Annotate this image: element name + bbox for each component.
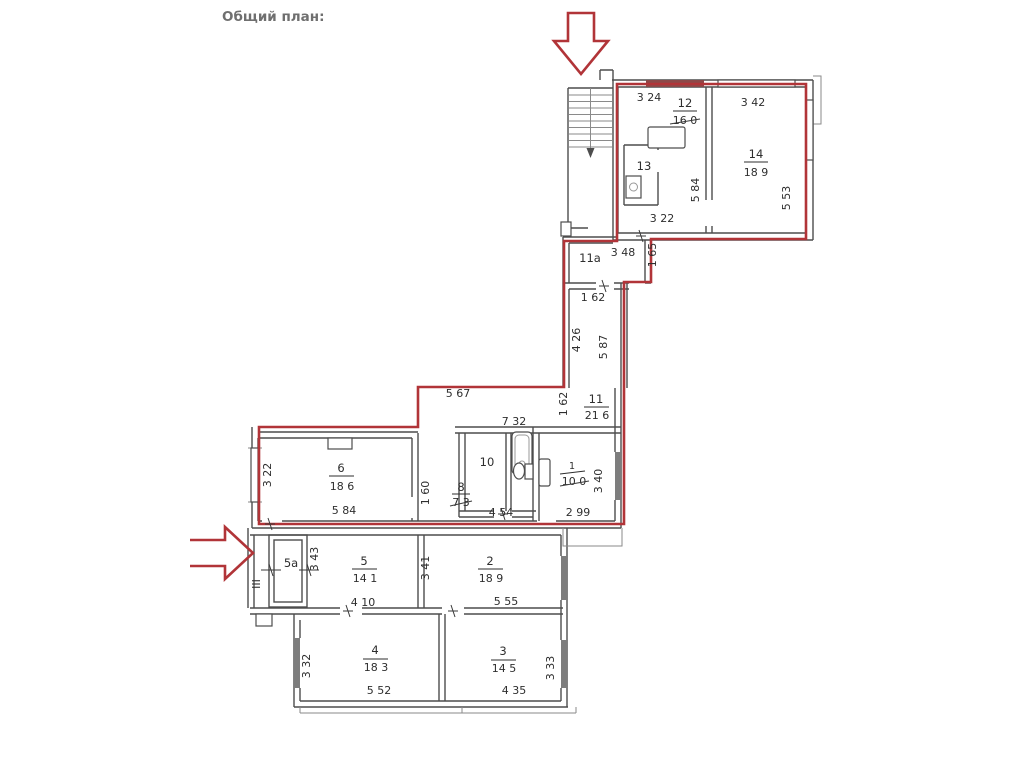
- dim-room8-height: 1 60: [419, 481, 432, 506]
- dim-corridor-width-mid: 1 62: [557, 392, 570, 417]
- area-label-3: 14 5: [492, 662, 517, 675]
- stair-landing-step: [561, 222, 571, 236]
- dim-corridor-top: 5 67: [446, 387, 471, 400]
- area-label-1: 10 0: [562, 475, 587, 488]
- entrance-arrow-right-icon: [190, 527, 253, 579]
- dim-room5a-height: 3 43: [308, 547, 321, 572]
- room-label-11: 11: [589, 392, 604, 406]
- room-label-1: 1: [569, 461, 575, 472]
- dim-room11a-width: 3 48: [611, 246, 636, 259]
- floor-plan-page: Общий план:: [0, 0, 1024, 768]
- dim-room6-height: 3 22: [261, 463, 274, 488]
- area-label-14: 18 9: [744, 166, 769, 179]
- window-room3-right: [561, 640, 567, 688]
- dim-room6-width: 5 84: [332, 504, 357, 517]
- entrance-arrow-down-icon: [554, 13, 608, 74]
- room-label-12: 12: [678, 96, 693, 110]
- dim-corridor-length-1: 4 26: [570, 328, 583, 353]
- toilet-bowl: [514, 463, 525, 479]
- window-kitchen-right: [615, 452, 621, 500]
- dim-room3-width: 4 35: [502, 684, 527, 697]
- dim-room13-bottom: 3 22: [650, 212, 675, 225]
- toilet-tank: [525, 464, 533, 479]
- dim-room2-width: 5 55: [494, 595, 519, 608]
- step-lower-left: [256, 614, 272, 626]
- storage-5a-outer: [269, 535, 307, 607]
- room-label-14: 14: [749, 147, 764, 161]
- room-label-4: 4: [371, 643, 378, 657]
- room-label-5a: 5a: [284, 556, 298, 570]
- room-label-6: 6: [337, 461, 344, 475]
- dim-corridor-length-2: 5 87: [597, 335, 610, 360]
- sink-room13: [626, 176, 641, 198]
- room-label-2: 2: [486, 554, 493, 568]
- walls-main: [248, 70, 813, 707]
- dim-corridor-width-top: 1 62: [581, 291, 606, 304]
- dim-room14-depth: 5 53: [780, 186, 793, 211]
- dim-room4-width: 5 52: [367, 684, 392, 697]
- dim-room12-depth: 5 84: [689, 178, 702, 203]
- closet-room12: [648, 127, 685, 148]
- page-title: Общий план:: [222, 9, 325, 25]
- area-label-6: 18 6: [330, 480, 355, 493]
- dim-room4-height: 3 32: [300, 654, 313, 679]
- dim-room3-height: 3 33: [544, 656, 557, 681]
- room-label-13: 13: [637, 159, 652, 173]
- room-label-11a: 11a: [579, 251, 601, 265]
- dim-room12-width: 3 24: [637, 91, 662, 104]
- dim-room1-width: 2 99: [566, 506, 591, 519]
- dim-room8-width: 4 54: [489, 506, 514, 519]
- area-label-11: 21 6: [585, 409, 610, 422]
- storage-5a-inner: [274, 540, 302, 602]
- room-label-3: 3: [499, 644, 506, 658]
- dim-room5-width: 4 10: [351, 596, 376, 609]
- window-room6-left: [251, 448, 258, 502]
- kitchen-counter: [539, 459, 550, 486]
- room-label-8: 8: [457, 480, 464, 494]
- dim-room5-height: 3 41: [419, 556, 432, 581]
- floor-plan-drawing: 3 24 12 16 0 3 42 13 14 18 9 5 84 5 53 3…: [0, 0, 1024, 768]
- stair-direction-arrow: [587, 148, 595, 158]
- area-label-5: 14 1: [353, 572, 378, 585]
- dim-wc-top: 7 32: [502, 415, 527, 428]
- window-room2-right: [561, 556, 567, 600]
- niche-room6-top: [328, 438, 352, 449]
- entrance-label: III: [249, 579, 262, 589]
- area-label-2: 18 9: [479, 572, 504, 585]
- dim-room14-width: 3 42: [741, 96, 766, 109]
- walls-light: [248, 76, 821, 713]
- area-label-4: 18 3: [364, 661, 389, 674]
- room-label-10: 10: [480, 455, 495, 469]
- dim-room1-height: 3 40: [592, 469, 605, 494]
- dim-room11a-height: 1 65: [646, 243, 659, 268]
- room-label-5: 5: [360, 554, 367, 568]
